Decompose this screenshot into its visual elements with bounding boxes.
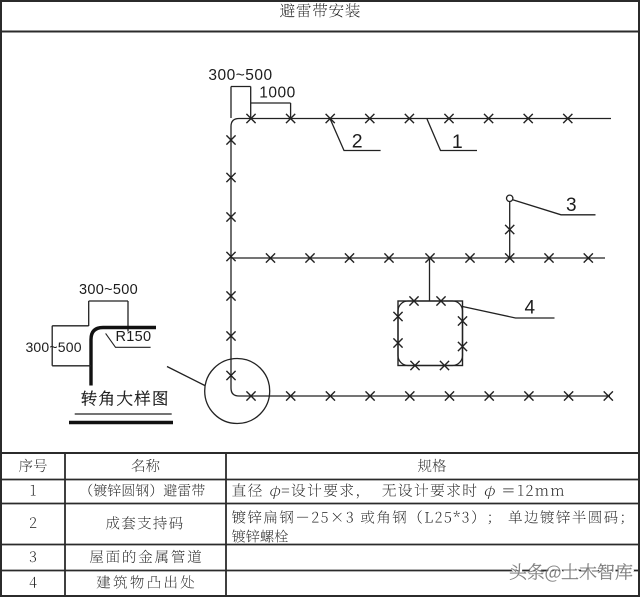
svg-text:2: 2 bbox=[352, 131, 363, 153]
svg-text:4: 4 bbox=[525, 298, 536, 319]
svg-text:300~500: 300~500 bbox=[25, 339, 81, 355]
svg-text:3: 3 bbox=[566, 195, 577, 216]
svg-text:R150: R150 bbox=[116, 329, 152, 345]
svg-text:300~500: 300~500 bbox=[208, 67, 272, 84]
svg-text:1000: 1000 bbox=[259, 85, 295, 102]
svg-text:1: 1 bbox=[452, 131, 463, 153]
svg-text:300~500: 300~500 bbox=[79, 282, 138, 298]
